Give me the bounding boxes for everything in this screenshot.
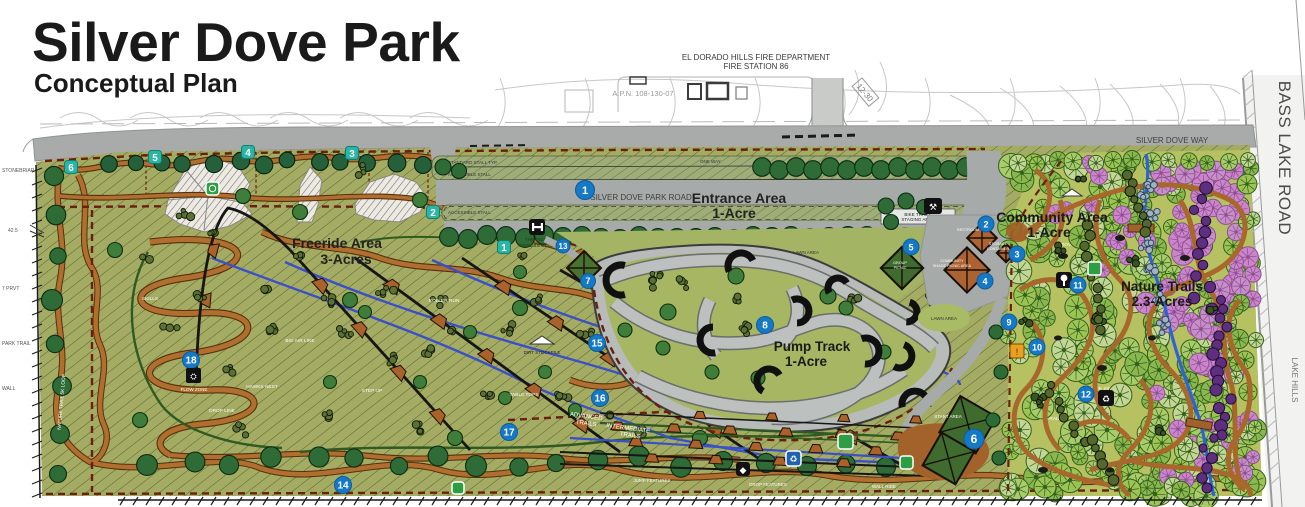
svg-text:STORAGE: STORAGE bbox=[989, 242, 1008, 246]
svg-text:2.3-Acres: 2.3-Acres bbox=[1132, 294, 1193, 309]
svg-text:WALL RIDE: WALL RIDE bbox=[872, 484, 896, 489]
svg-text:DROP FEATURES: DROP FEATURES bbox=[749, 482, 787, 487]
svg-text:BIG AIR LINE: BIG AIR LINE bbox=[285, 338, 314, 344]
svg-text:11: 11 bbox=[1073, 280, 1083, 290]
svg-text:1: 1 bbox=[582, 185, 588, 197]
svg-text:JUMP FEATURES: JUMP FEATURES bbox=[633, 478, 670, 483]
svg-text:FLOW ZONE: FLOW ZONE bbox=[181, 387, 208, 392]
svg-text:Conceptual Plan: Conceptual Plan bbox=[34, 68, 238, 98]
svg-text:FIRE STATION 86: FIRE STATION 86 bbox=[723, 62, 789, 71]
svg-text:LAKE HILLS: LAKE HILLS bbox=[1290, 358, 1299, 403]
svg-text:ONE WAY: ONE WAY bbox=[700, 159, 721, 164]
svg-text:7: 7 bbox=[585, 276, 590, 286]
svg-text:⚒: ⚒ bbox=[929, 202, 937, 212]
svg-text:3: 3 bbox=[1014, 249, 1019, 259]
svg-text:17: 17 bbox=[503, 428, 515, 439]
svg-text:START AREA: START AREA bbox=[934, 414, 962, 419]
svg-text:STEP UP: STEP UP bbox=[362, 388, 382, 394]
svg-text:2: 2 bbox=[983, 219, 988, 229]
svg-text:9: 9 bbox=[1006, 317, 1011, 327]
svg-text:15: 15 bbox=[591, 339, 603, 350]
svg-text:Pump Track: Pump Track bbox=[774, 339, 851, 354]
svg-text:EL DORADO HILLS FIRE DEPARTMEN: EL DORADO HILLS FIRE DEPARTMENT bbox=[682, 53, 830, 62]
svg-text:STONEBRIAR: STONEBRIAR bbox=[2, 168, 35, 174]
svg-text:3: 3 bbox=[349, 149, 355, 160]
svg-text:A.P.N. 108-130-07: A.P.N. 108-130-07 bbox=[612, 89, 673, 98]
svg-text:RESTROOM: RESTROOM bbox=[957, 228, 979, 232]
svg-text:18: 18 bbox=[185, 356, 197, 367]
svg-text:1: 1 bbox=[501, 243, 507, 254]
svg-text:1-Acre: 1-Acre bbox=[785, 354, 828, 369]
svg-text:LAWN AREA: LAWN AREA bbox=[931, 316, 957, 321]
svg-text:COMMUNITY: COMMUNITY bbox=[940, 259, 964, 263]
svg-text:5: 5 bbox=[152, 153, 158, 164]
svg-text:Freeride Area: Freeride Area bbox=[292, 235, 382, 251]
svg-text:14: 14 bbox=[337, 481, 349, 492]
svg-text:HAWKS NEST: HAWKS NEST bbox=[246, 384, 278, 390]
svg-text:WALL: WALL bbox=[2, 386, 16, 392]
svg-text:SILVER DOVE PARK ROAD: SILVER DOVE PARK ROAD bbox=[590, 193, 692, 202]
svg-text:42.5: 42.5 bbox=[8, 228, 18, 234]
svg-text:SKILLS: SKILLS bbox=[142, 296, 158, 302]
svg-text:DIRT STOCKPILE: DIRT STOCKPILE bbox=[524, 350, 561, 355]
svg-text:GROUP: GROUP bbox=[893, 261, 907, 265]
svg-text:6: 6 bbox=[68, 163, 74, 174]
svg-text:2: 2 bbox=[430, 208, 436, 219]
svg-text:DROP LINE: DROP LINE bbox=[209, 408, 235, 414]
svg-text:!: ! bbox=[1016, 347, 1019, 357]
svg-text:BASS LAKE ROAD: BASS LAKE ROAD bbox=[1275, 81, 1294, 235]
svg-text:3-Acres: 3-Acres bbox=[320, 251, 372, 267]
svg-text:♻: ♻ bbox=[1102, 394, 1110, 404]
svg-text:10: 10 bbox=[1032, 342, 1042, 352]
svg-text:⛭: ⛭ bbox=[190, 372, 197, 381]
svg-text:ROLLER RUN: ROLLER RUN bbox=[429, 298, 460, 304]
svg-text:Entrance Area: Entrance Area bbox=[692, 190, 787, 206]
svg-text:ACCESSIBLE STALL: ACCESSIBLE STALL bbox=[448, 210, 491, 215]
svg-text:1-Acre: 1-Acre bbox=[712, 205, 756, 221]
svg-text:♻: ♻ bbox=[789, 454, 797, 464]
svg-text:13: 13 bbox=[559, 242, 568, 251]
svg-text:12: 12 bbox=[1081, 389, 1091, 399]
svg-text:◆: ◆ bbox=[740, 465, 747, 475]
svg-text:1-Acre: 1-Acre bbox=[1027, 224, 1071, 240]
svg-text:CONTAINER: CONTAINER bbox=[987, 247, 1009, 251]
svg-text:8: 8 bbox=[762, 321, 768, 332]
svg-text:5: 5 bbox=[908, 242, 913, 252]
svg-text:Community Area: Community Area bbox=[996, 209, 1108, 225]
svg-text:6: 6 bbox=[971, 432, 978, 446]
svg-text:Nature Trails: Nature Trails bbox=[1121, 279, 1203, 294]
svg-text:4: 4 bbox=[982, 276, 987, 286]
svg-text:TABLE TOPS: TABLE TOPS bbox=[509, 392, 538, 398]
svg-text:LAWN AREA: LAWN AREA bbox=[793, 250, 819, 255]
svg-text:PARK TRAIL: PARK TRAIL bbox=[2, 341, 31, 347]
svg-text:SILVER DOVE WAY: SILVER DOVE WAY bbox=[1136, 136, 1209, 145]
svg-text:SHADE PICNIC AREA: SHADE PICNIC AREA bbox=[933, 264, 972, 268]
svg-text:7 PRVT: 7 PRVT bbox=[2, 286, 19, 292]
svg-text:Silver Dove Park: Silver Dove Park bbox=[32, 11, 461, 73]
svg-text:4: 4 bbox=[245, 148, 251, 159]
svg-text:16: 16 bbox=[594, 394, 606, 405]
svg-text:PICNIC: PICNIC bbox=[894, 266, 907, 270]
